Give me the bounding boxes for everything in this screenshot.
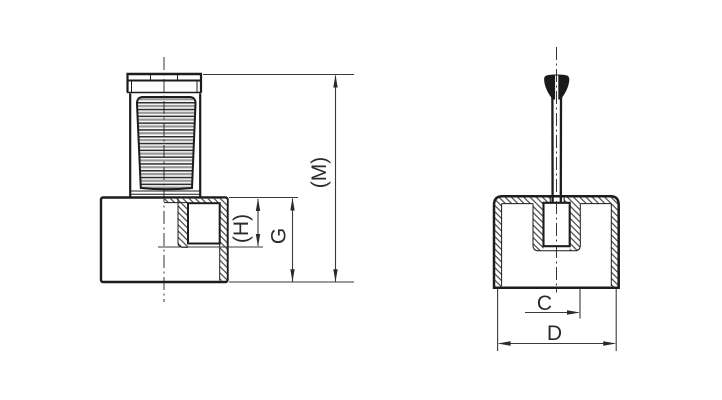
dim-label-G: G (267, 228, 290, 244)
technical-drawing: (H) G (M) (0, 0, 722, 400)
dim-label-C: C (537, 292, 552, 315)
dim-label-H: (H) (230, 214, 253, 243)
knurl-grip (137, 97, 196, 189)
blind-hole-front (188, 203, 220, 243)
dim-label-M: (M) (308, 157, 331, 188)
dim-label-D: D (547, 322, 562, 345)
